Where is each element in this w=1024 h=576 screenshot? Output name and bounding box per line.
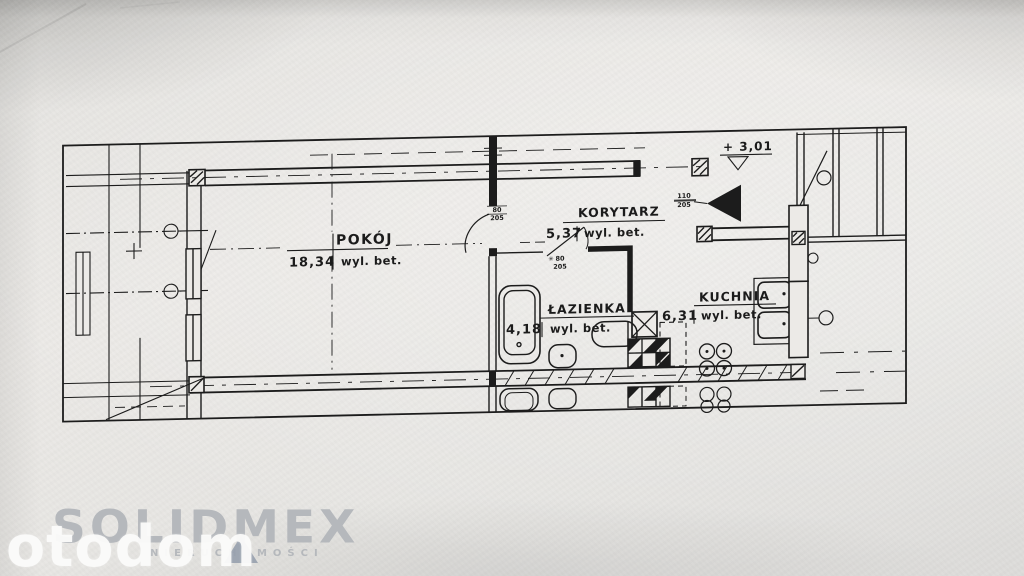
watermark-otodom: otodom: [6, 514, 257, 576]
svg-text:POKÓJ: POKÓJ: [336, 229, 393, 248]
svg-text:80: 80: [555, 255, 565, 263]
wall-centerline: [150, 372, 810, 387]
svg-text:KUCHNIA: KUCHNIA: [699, 288, 770, 305]
stair-diagonal: [106, 377, 205, 419]
svg-text:wyl. bet.: wyl. bet.: [701, 307, 762, 322]
svg-text:4,18: 4,18: [506, 322, 542, 338]
elevation-marker: [720, 154, 772, 170]
svg-text:ŁAZIENKA: ŁAZIENKA: [547, 300, 626, 317]
callout-circle: [808, 253, 818, 263]
kitchen-top-wall: [697, 225, 790, 242]
washbasin-icon: [549, 344, 576, 368]
washbasin-icon: [549, 388, 576, 409]
floor-plan-drawing: POKÓJ 18,34 wyl. bet. KORYTARZ 5,37 wyl.…: [0, 0, 1024, 576]
svg-text:205: 205: [677, 201, 691, 209]
entrance-arrow-icon: [707, 185, 741, 223]
elevation-label: + 3,01: [723, 139, 773, 154]
svg-text:80: 80: [492, 206, 502, 214]
svg-text:205: 205: [553, 263, 567, 271]
door-label-bathroom: ✳ 80 205: [548, 255, 567, 271]
column-hatched: [697, 226, 712, 241]
svg-text:wyl. bet.: wyl. bet.: [584, 225, 645, 240]
top-wall-band: [66, 146, 708, 189]
svg-text:18,34: 18,34: [289, 255, 335, 271]
svg-text:6,31: 6,31: [662, 309, 698, 325]
svg-text:110: 110: [677, 192, 691, 200]
floor-plan-photo: POKÓJ 18,34 wyl. bet. KORYTARZ 5,37 wyl.…: [0, 0, 1024, 576]
column-hatched: [791, 364, 805, 378]
svg-text:wyl. bet.: wyl. bet.: [341, 253, 402, 268]
callout-circle: [819, 311, 833, 325]
door-swing: [465, 214, 489, 253]
wall-centerline: [120, 167, 700, 180]
column-hatched: [692, 158, 708, 175]
svg-text:wyl. bet.: wyl. bet.: [550, 321, 611, 336]
room-label-lazienka: ŁAZIENKA 4,18 wyl. bet.: [506, 300, 626, 338]
svg-text:KORYTARZ: KORYTARZ: [578, 203, 660, 220]
stove-icon: [700, 387, 731, 413]
callout-circle: [817, 171, 831, 185]
axis-dash-line: [310, 148, 645, 155]
svg-text:✳: ✳: [548, 255, 554, 263]
bottom-wall-band: [63, 363, 810, 420]
column-hatched: [189, 169, 205, 185]
svg-text:205: 205: [490, 214, 504, 222]
right-zone: [789, 127, 906, 392]
